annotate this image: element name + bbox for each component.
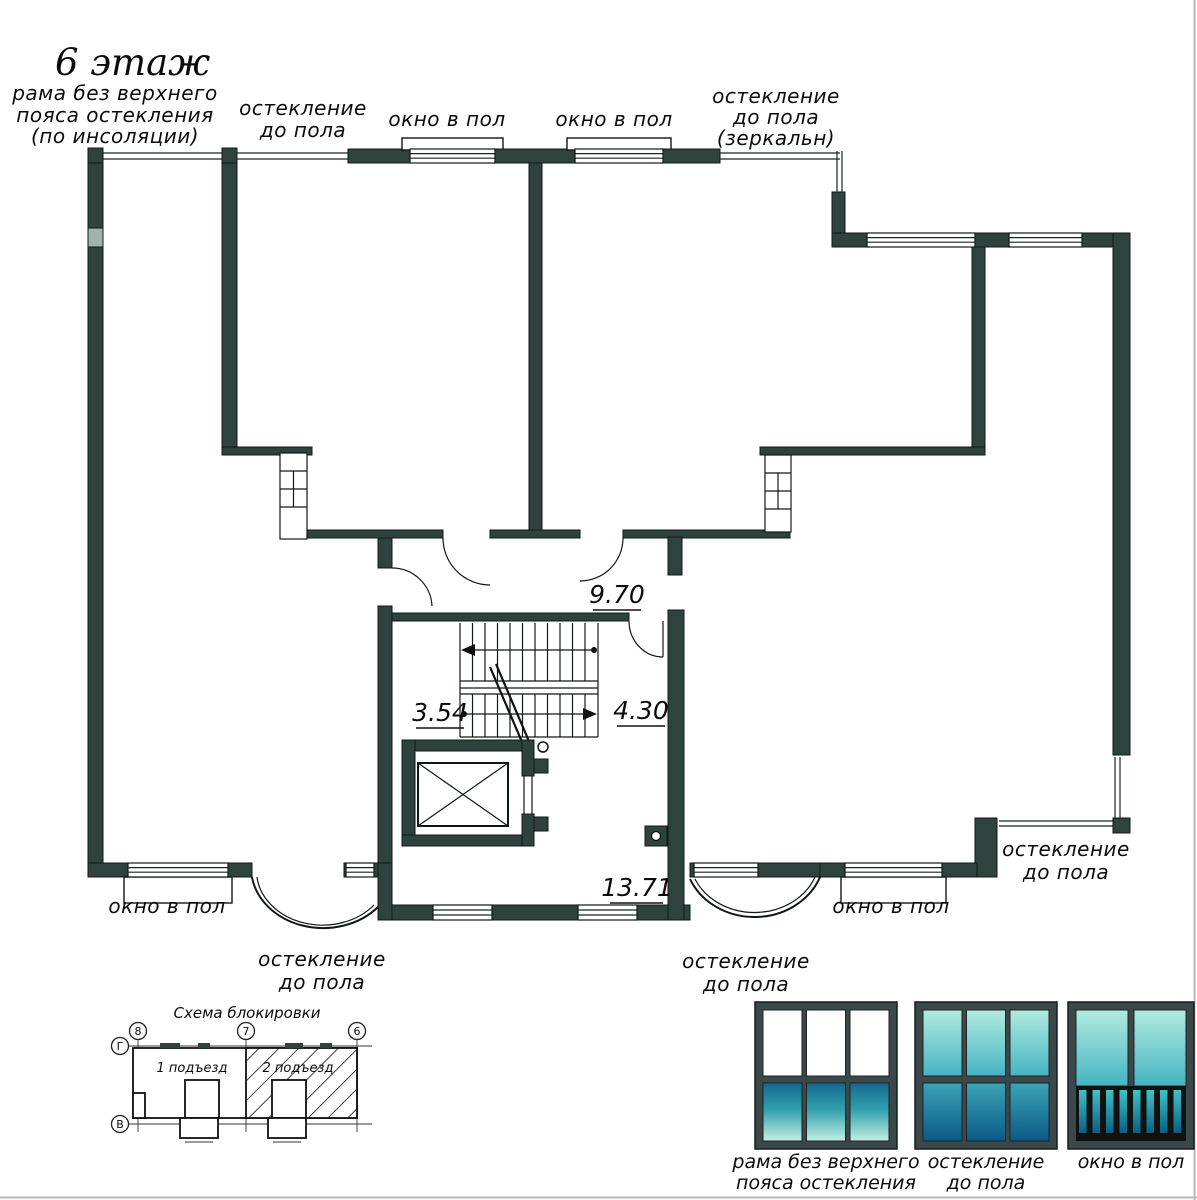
legend: рама без верхнего пояса остекления остек… bbox=[731, 1002, 1194, 1194]
legend-item-glazing-to-floor: остекление до пола bbox=[915, 1002, 1057, 1194]
dim-under-stair: 3.54 bbox=[412, 698, 468, 727]
door-arc-stairwell bbox=[629, 621, 663, 657]
staircase bbox=[460, 623, 598, 749]
vent-shaft-left bbox=[280, 453, 307, 539]
label-glazing-bay-left: остекление bbox=[258, 947, 386, 971]
svg-text:(по инсоляции): (по инсоляции) bbox=[31, 124, 199, 148]
axis-V: В bbox=[116, 1118, 124, 1131]
label-glazing-top-left: остекление bbox=[239, 96, 367, 120]
label-window-bottom-right: окно в пол bbox=[832, 894, 949, 918]
floor-plan-drawing: 9.70 3.54 4.30 13.71 6 этаж рама без вер… bbox=[0, 0, 1197, 1200]
floor-title: 6 этаж bbox=[55, 41, 210, 84]
label-window-top-left: окно в пол bbox=[388, 107, 505, 131]
schema-entrance-1: 1 подъезд bbox=[157, 1061, 228, 1076]
elevator-shaft bbox=[402, 740, 548, 846]
door-arc-corridor-left bbox=[392, 568, 432, 606]
svg-text:окно в пол: окно в пол bbox=[1078, 1151, 1185, 1173]
block-schema: Схема блокировки 8 7 6 Г В 1 подъезд 2 п… bbox=[112, 1004, 373, 1142]
svg-text:(зеркальн): (зеркальн) bbox=[717, 126, 835, 150]
svg-text:до пола: до пола bbox=[259, 118, 346, 142]
left-wall-window-joint bbox=[88, 228, 103, 247]
label-glazing-corner-right: остекление bbox=[1002, 837, 1130, 861]
dim-corridor: 9.70 bbox=[589, 580, 645, 609]
window-sill-top-1 bbox=[402, 138, 503, 150]
schema-porch-2 bbox=[268, 1118, 306, 1138]
svg-text:до пола: до пола bbox=[702, 972, 789, 996]
vent-box bbox=[645, 826, 667, 846]
annotations: 6 этаж рама без верхнего пояса остеклени… bbox=[11, 41, 1130, 996]
window-sill-top-2 bbox=[567, 138, 671, 150]
svg-text:до пола: до пола bbox=[278, 970, 365, 994]
axis-7: 7 bbox=[243, 1025, 250, 1038]
axis-8: 8 bbox=[135, 1025, 142, 1038]
svg-text:пояса остекления: пояса остекления bbox=[736, 1172, 916, 1194]
legend-item-frame-no-upper-belt: рама без верхнего пояса остекления bbox=[731, 1002, 919, 1194]
label-glazing-bay-right: остекление bbox=[682, 949, 810, 973]
block-schema-title: Схема блокировки bbox=[173, 1004, 320, 1022]
door-arc-apartment-left bbox=[443, 538, 490, 585]
vent-shaft-right bbox=[765, 455, 791, 532]
svg-text:до пола: до пола bbox=[946, 1172, 1026, 1194]
label-window-bottom-left: окно в пол bbox=[108, 894, 225, 918]
legend-item-window-to-floor: окно в пол bbox=[1068, 1002, 1194, 1173]
label-frame-no-upper-belt: рама без верхнего bbox=[11, 81, 218, 105]
label-window-top-right: окно в пол bbox=[555, 107, 672, 131]
interior-walls bbox=[222, 163, 985, 920]
schema-porch-1 bbox=[180, 1118, 218, 1138]
stair-arrow-down bbox=[583, 708, 597, 720]
door-arc-apartment-right bbox=[580, 538, 623, 581]
svg-text:до пола: до пола bbox=[1022, 860, 1109, 884]
dim-hall: 13.71 bbox=[601, 873, 673, 902]
dim-stair-side: 4.30 bbox=[613, 696, 669, 725]
stair-arrow-up bbox=[461, 644, 475, 656]
axis-6: 6 bbox=[354, 1025, 361, 1038]
svg-text:остекление: остекление bbox=[928, 1151, 1045, 1173]
floor-plan-sheet: 9.70 3.54 4.30 13.71 6 этаж рама без вер… bbox=[0, 0, 1197, 1200]
svg-text:рама без верхнего: рама без верхнего bbox=[731, 1151, 919, 1173]
door-pivot-symbol bbox=[538, 742, 548, 752]
bay-glazing-left bbox=[252, 877, 378, 928]
axis-G: Г bbox=[117, 1040, 124, 1053]
schema-entrance-2: 2 подъезд bbox=[263, 1061, 334, 1076]
